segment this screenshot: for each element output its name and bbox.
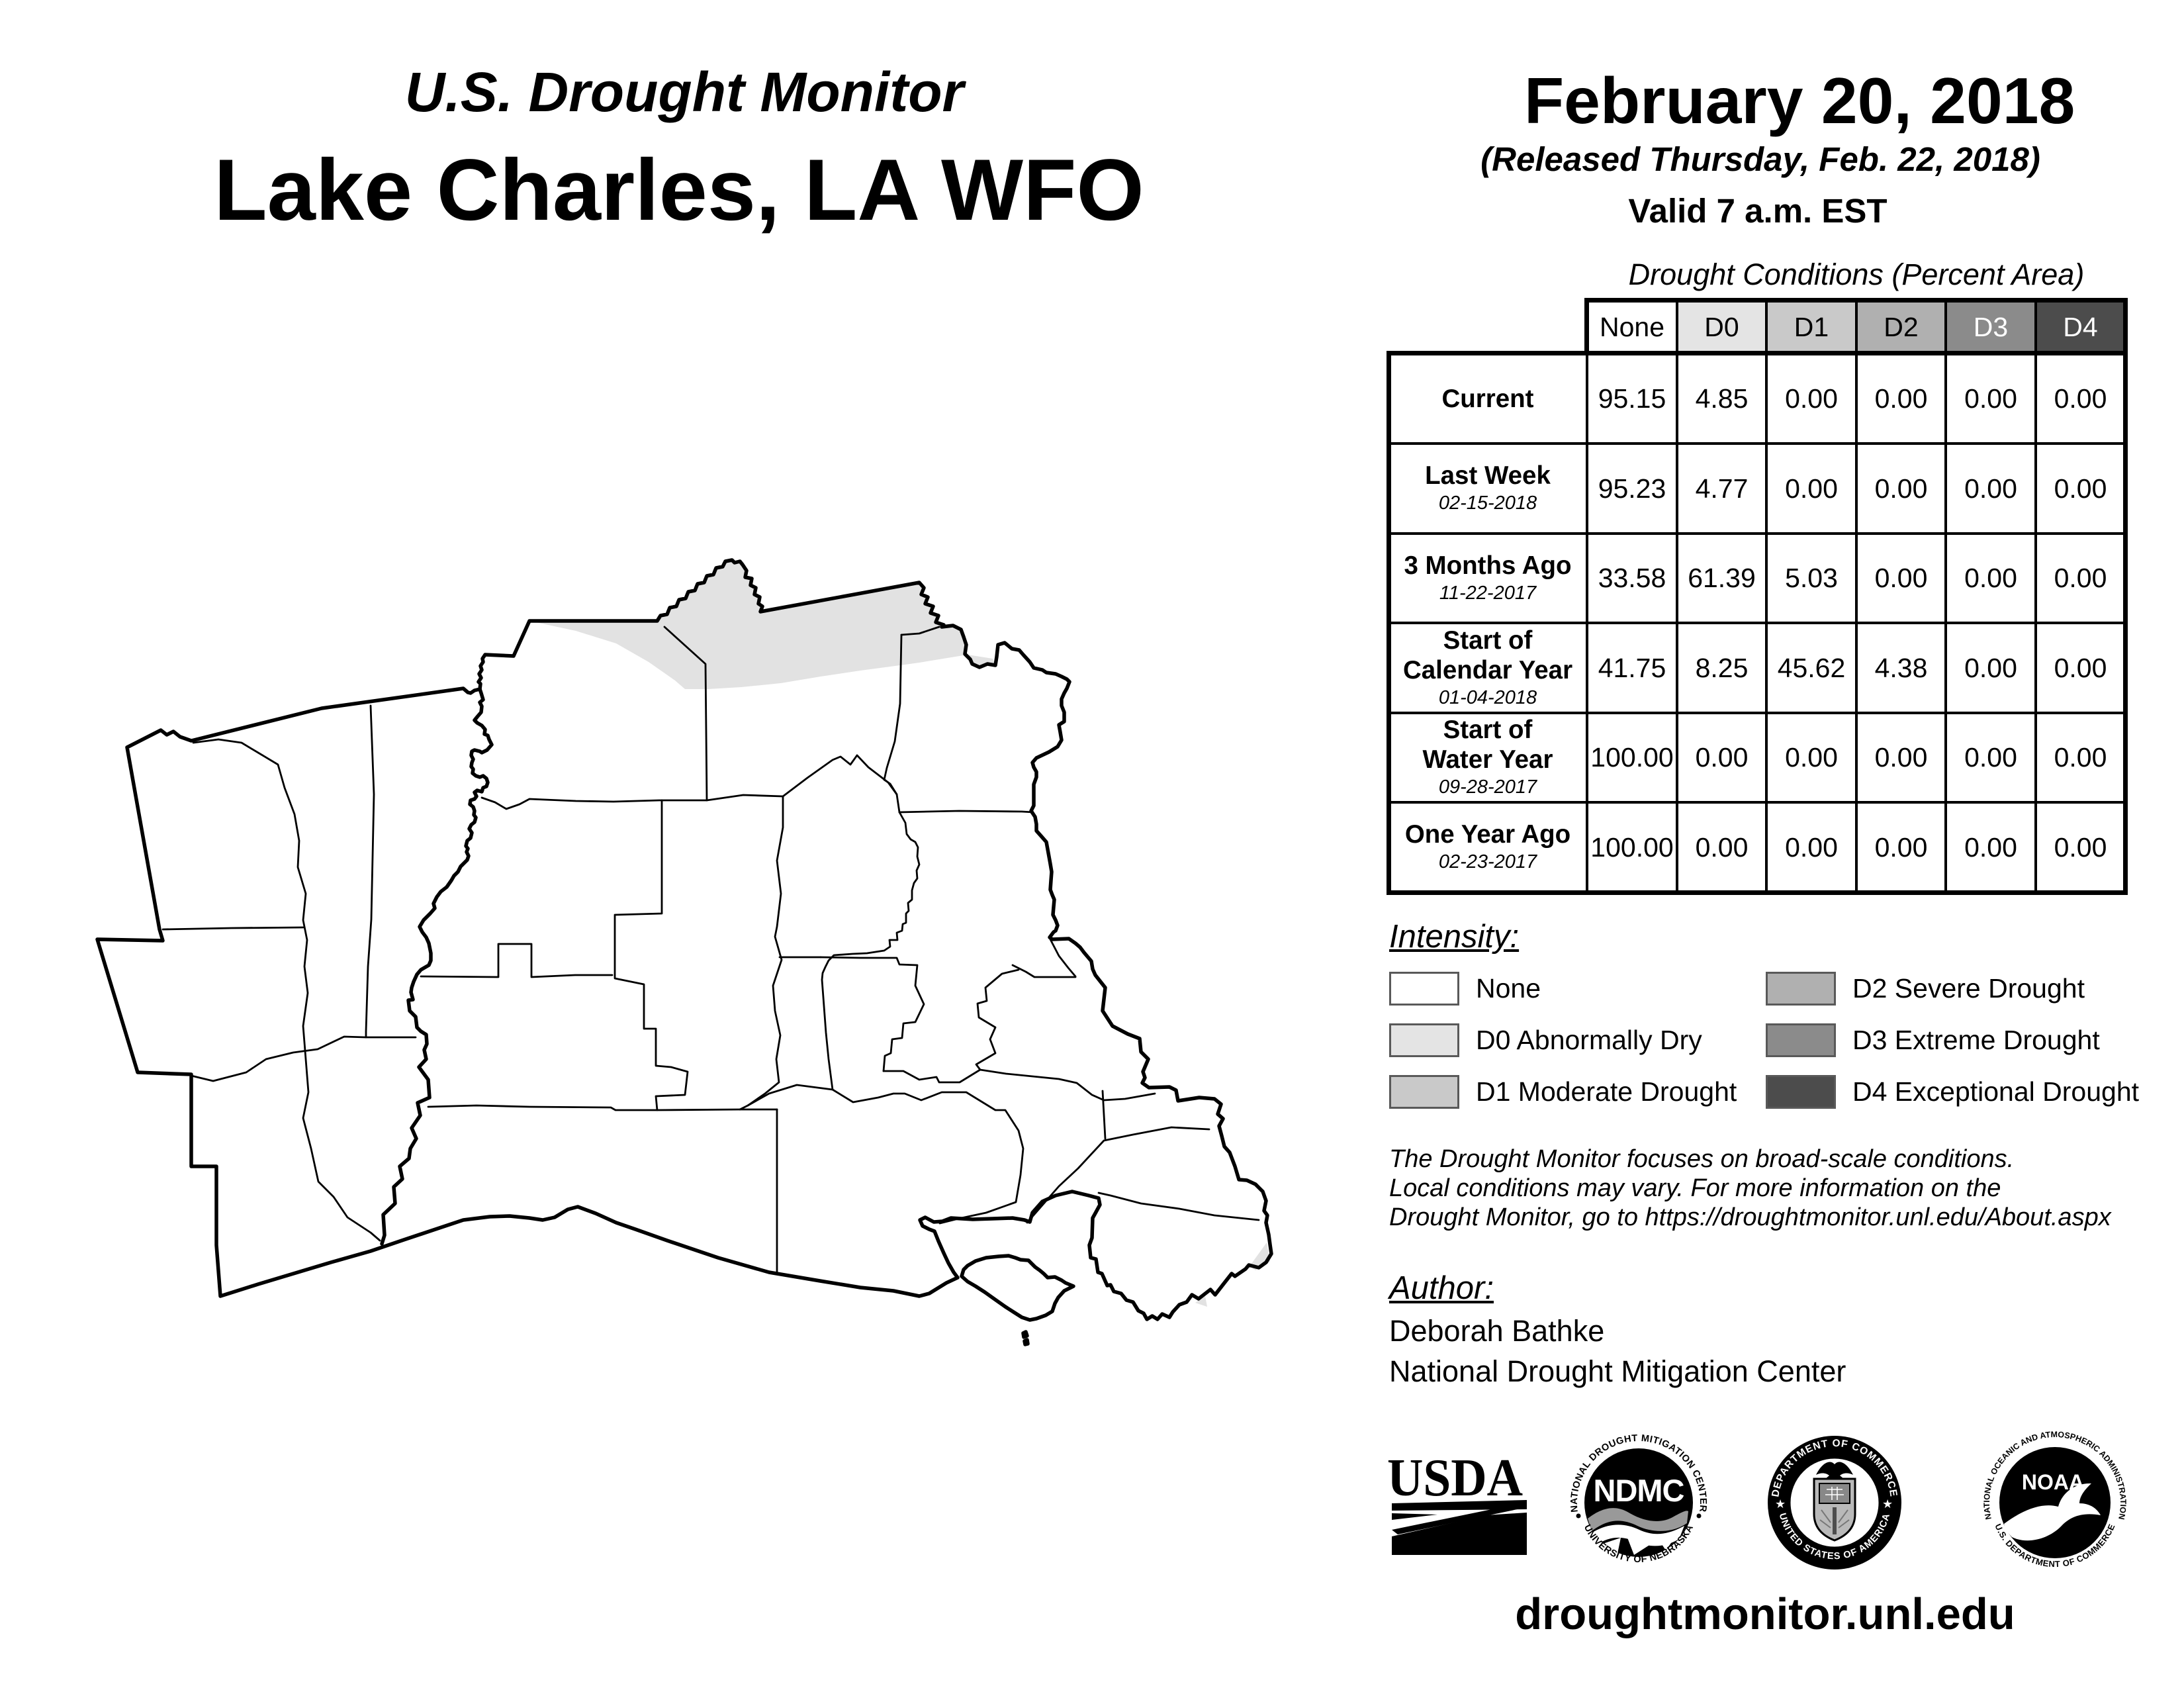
svg-text:NOAA: NOAA	[2022, 1470, 2084, 1494]
svg-text:NDMC: NDMC	[1594, 1473, 1684, 1508]
svg-text:★: ★	[1775, 1497, 1786, 1511]
svg-text:★: ★	[1882, 1497, 1893, 1511]
svg-text:USDA: USDA	[1387, 1449, 1523, 1507]
